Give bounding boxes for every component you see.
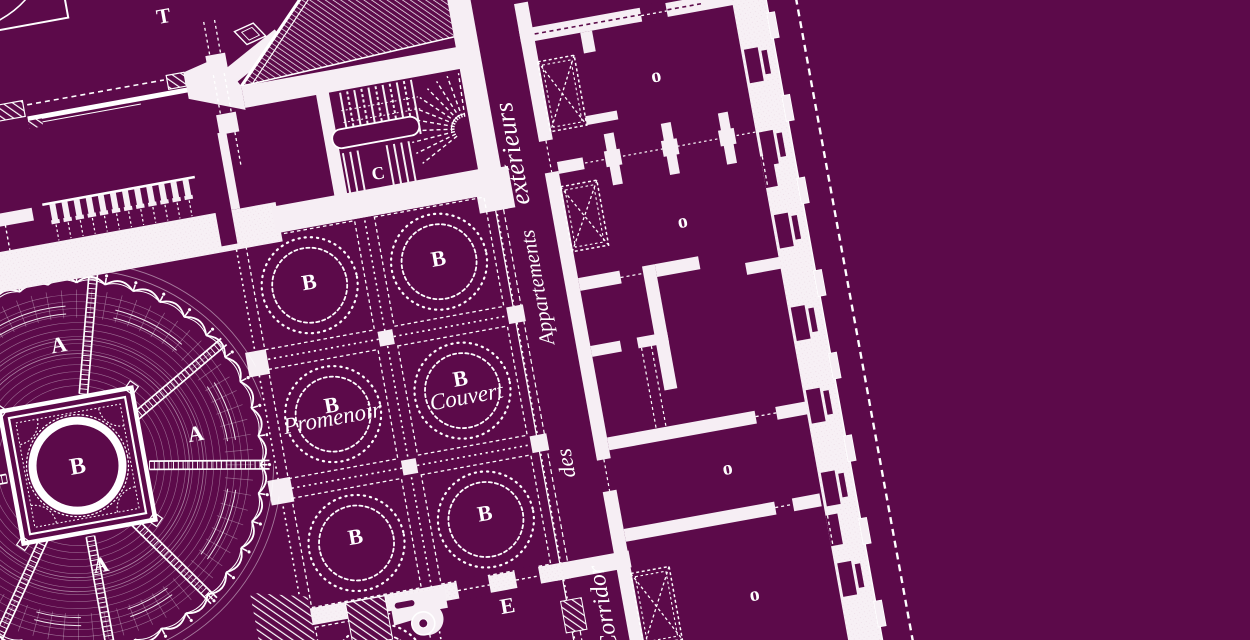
svg-text:des: des [551, 447, 581, 480]
